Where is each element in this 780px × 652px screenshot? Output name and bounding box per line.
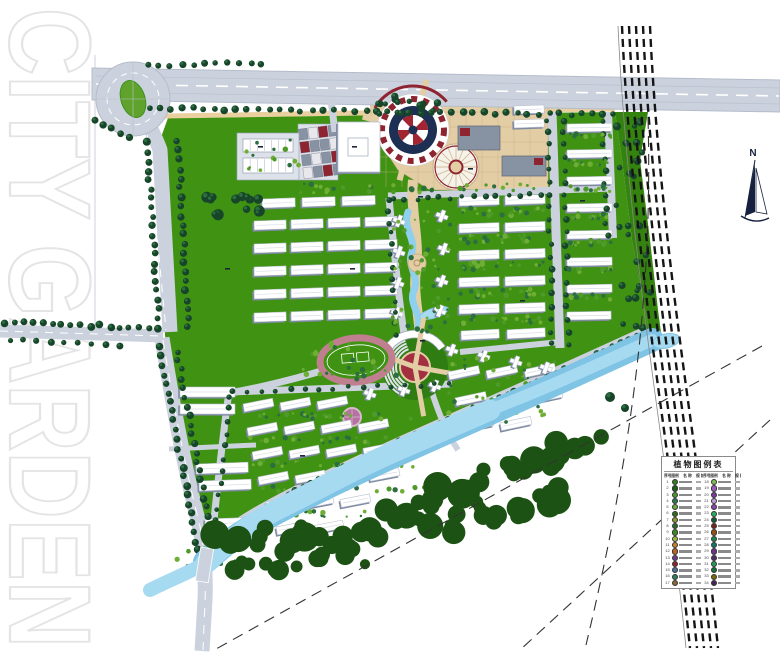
legend-cell: [672, 504, 678, 510]
legend-cell: [735, 481, 740, 483]
legend-cell: [711, 523, 717, 529]
legend-cell: [679, 563, 692, 565]
legend-cell: [679, 531, 692, 533]
legend-cell: [718, 582, 731, 584]
legend-cell: [735, 550, 740, 552]
legend-cell: [696, 494, 701, 496]
legend-cell: [711, 548, 717, 554]
legend-cell: [672, 523, 678, 529]
legend-cell: [672, 580, 678, 586]
legend-cell: [696, 500, 701, 502]
legend-cell: [711, 580, 717, 586]
legend-cell: [711, 485, 717, 491]
legend-cell: 名 称: [718, 473, 735, 479]
legend-cell: 34: [703, 580, 710, 586]
legend-cell: [679, 487, 692, 489]
legend-cell: [735, 525, 740, 527]
legend-cell: [696, 582, 701, 584]
legend-cell: [672, 536, 678, 542]
legend-cell: [672, 485, 678, 491]
legend-cell: [735, 487, 740, 489]
site-plan: CITY GARDEN N 植物图例表 序号图例名 称规 格序号图例名 称规 格…: [0, 0, 780, 652]
legend-cell: [672, 548, 678, 554]
legend-cell: [679, 525, 692, 527]
legend-cell: [718, 481, 731, 483]
legend-cell: [735, 557, 740, 559]
legend-cell: [735, 544, 740, 546]
legend-cell: [696, 531, 701, 533]
legend-cell: 规 格: [696, 473, 703, 479]
legend-cell: [696, 487, 701, 489]
legend-cell: [696, 563, 701, 565]
legend-cell: [679, 544, 692, 546]
legend-cell: [718, 494, 731, 496]
legend-cell: 名 称: [679, 473, 696, 479]
legend-cell: [679, 550, 692, 552]
legend-cell: [735, 506, 740, 508]
legend-cell: [672, 542, 678, 548]
legend-cell: [718, 506, 731, 508]
north-sail-light: [756, 168, 767, 214]
legend-cell: [711, 492, 717, 498]
legend-cell: [735, 512, 740, 514]
legend-cell: [735, 563, 740, 565]
legend-cell: [718, 569, 731, 571]
legend-cell: [696, 550, 701, 552]
legend-cell: [672, 574, 678, 580]
legend-cell: [679, 575, 692, 577]
legend-cell: [735, 500, 740, 502]
legend-cell: [672, 492, 678, 498]
legend-cell: [679, 569, 692, 571]
legend-cell: [711, 561, 717, 567]
plant-legend-grid: 序号图例名 称规 格序号图例名 称规 格11821932042152262372…: [664, 473, 733, 586]
legend-cell: [711, 517, 717, 523]
legend-cell: [711, 479, 717, 485]
legend-cell: [718, 525, 731, 527]
legend-cell: [718, 538, 731, 540]
legend-cell: [735, 582, 740, 584]
legend-cell: [718, 500, 731, 502]
north-arrow: N: [741, 148, 769, 221]
legend-cell: 17: [664, 580, 671, 586]
legend-cell: [679, 519, 692, 521]
legend-cell: [735, 538, 740, 540]
legend-cell: [711, 498, 717, 504]
legend-cell: [718, 550, 731, 552]
legend-cell: [735, 569, 740, 571]
legend-cell: [679, 512, 692, 514]
legend-cell: [718, 512, 731, 514]
legend-cell: [711, 504, 717, 510]
legend-cell: [735, 494, 740, 496]
legend-cell: [672, 567, 678, 573]
legend-cell: [696, 512, 701, 514]
legend-cell: [718, 563, 731, 565]
legend-cell: [696, 519, 701, 521]
legend-cell: [735, 531, 740, 533]
legend-cell: [672, 517, 678, 523]
legend-cell: [735, 519, 740, 521]
legend-cell: [696, 544, 701, 546]
legend-cell: [672, 529, 678, 535]
legend-cell: [679, 500, 692, 502]
legend-cell: [672, 479, 678, 485]
legend-cell: [696, 557, 701, 559]
legend-cell: [711, 574, 717, 580]
legend-cell: [711, 536, 717, 542]
legend-cell: [679, 494, 692, 496]
legend-cell: [718, 575, 731, 577]
legend-cell: [711, 511, 717, 517]
legend-cell: [718, 557, 731, 559]
legend-cell: [679, 481, 692, 483]
legend-cell: [718, 531, 731, 533]
legend-cell: [711, 555, 717, 561]
legend-cell: [672, 555, 678, 561]
legend-cell: [711, 529, 717, 535]
legend-cell: [718, 544, 731, 546]
plant-legend-table: 植物图例表 序号图例名 称规 格序号图例名 称规 格11821932042152…: [661, 456, 736, 589]
legend-cell: [696, 481, 701, 483]
legend-cell: [718, 519, 731, 521]
legend-cell: [672, 511, 678, 517]
north-letter: N: [749, 148, 756, 159]
legend-cell: [718, 487, 731, 489]
legend-cell: [679, 506, 692, 508]
legend-cell: [679, 557, 692, 559]
legend-cell: [696, 538, 701, 540]
legend-cell: [672, 561, 678, 567]
legend-cell: [711, 542, 717, 548]
legend-cell: [696, 506, 701, 508]
legend-cell: [696, 575, 701, 577]
legend-cell: [711, 567, 717, 573]
legend-cell: [679, 538, 692, 540]
legend-cell: [696, 525, 701, 527]
legend-cell: [672, 498, 678, 504]
plant-legend-title: 植物图例表: [664, 459, 733, 472]
legend-cell: 规 格: [735, 473, 741, 479]
legend-cell: [696, 569, 701, 571]
legend-cell: [679, 582, 692, 584]
legend-cell: [735, 575, 740, 577]
